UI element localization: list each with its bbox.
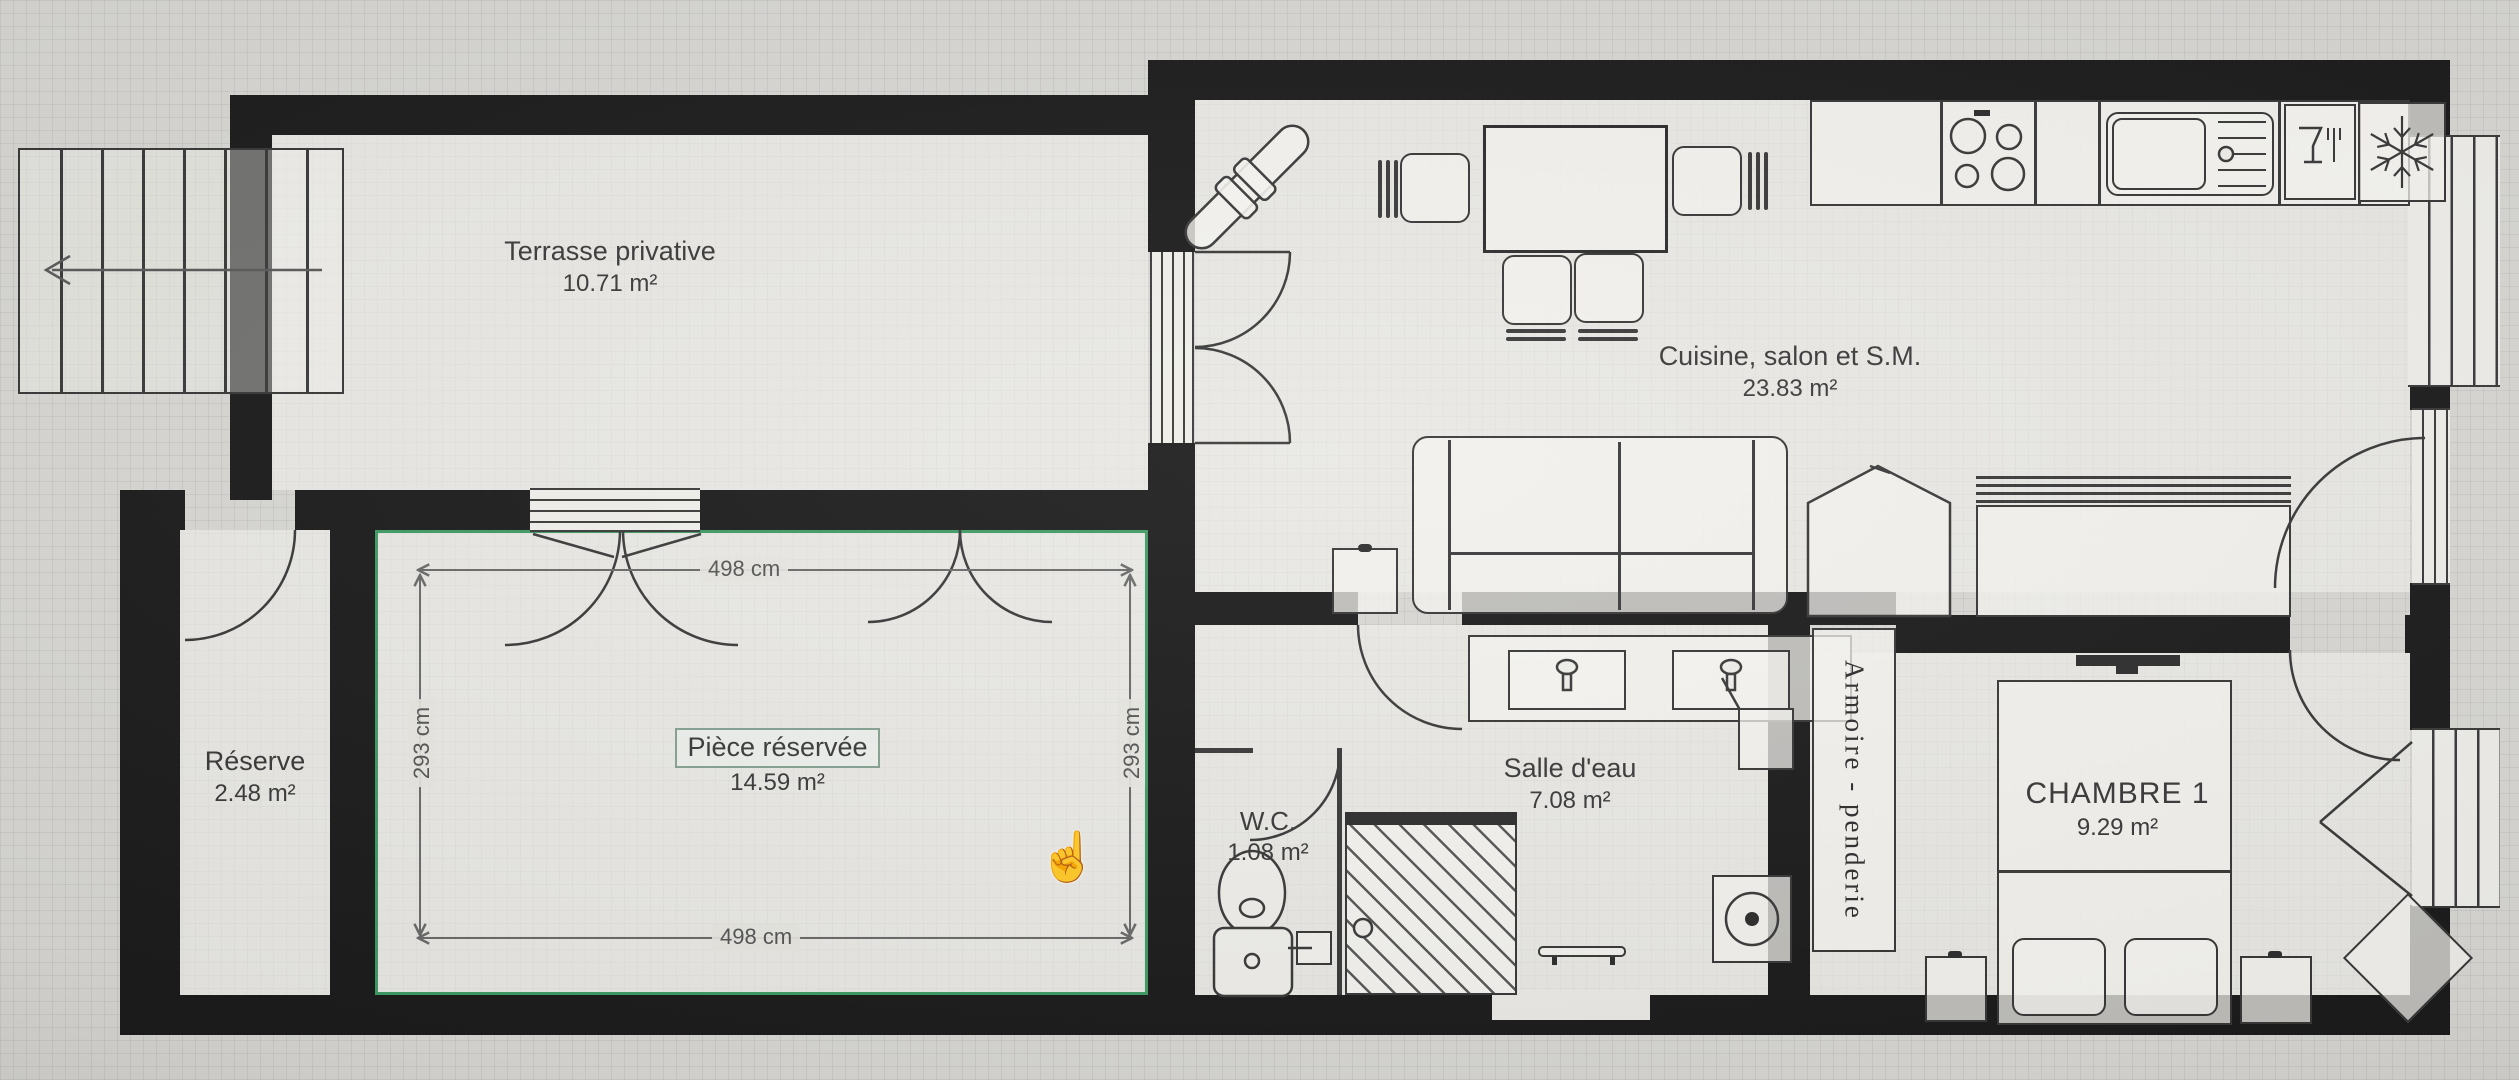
label-wc: W.C. 1.08 m² (1198, 805, 1338, 868)
room-name: Terrasse privative (504, 236, 716, 266)
cooktop-control (1974, 110, 1990, 116)
washer-door-dot (1745, 912, 1759, 926)
floor-plan: Armoire - penderie (0, 0, 2519, 1080)
burner (1956, 165, 1978, 187)
burner (1951, 119, 1985, 153)
dimension-label-bottom: 498 cm (712, 924, 800, 950)
snowflake-icon (2367, 116, 2437, 188)
faucet-icon (1721, 660, 1741, 674)
label-reserve: Réserve 2.48 m² (155, 745, 355, 809)
sink-drain (2219, 147, 2233, 161)
room-area: 23.83 m² (1590, 374, 1990, 404)
room-name: W.C. (1240, 806, 1296, 836)
hand-cursor-icon: ☝ (1038, 828, 1098, 885)
label-terrasse: Terrasse privative 10.71 m² (420, 235, 800, 299)
burner (1992, 158, 2024, 190)
room-name: CHAMBRE 1 (2025, 777, 2209, 810)
label-chambre1: CHAMBRE 1 9.29 m² (1985, 775, 2250, 843)
window-swing-lines (2320, 742, 2412, 896)
label-salle-eau: Salle d'eau 7.08 m² (1430, 752, 1710, 816)
room-name: Réserve (205, 746, 306, 776)
selected-room-name-box[interactable]: Pièce réservée (675, 728, 879, 768)
door-arc-reserve (185, 530, 295, 640)
fork-icon (2328, 128, 2340, 162)
faucet-icon (1563, 674, 1571, 690)
dimension-label-left: 293 cm (409, 699, 435, 787)
door-arc-entry (2275, 438, 2425, 588)
door-arc-terrasse-cuisine-top (1195, 252, 1290, 347)
room-area: 9.29 m² (1985, 813, 2250, 843)
room-area: 7.08 m² (1430, 786, 1710, 816)
shower-drain (1354, 919, 1372, 937)
door-arc-chambre (2290, 650, 2400, 760)
dimension-label-top: 498 cm (700, 556, 788, 582)
label-piece-reservee: Pièce réservée 14.59 m² (555, 728, 1000, 798)
glass-icon (2299, 128, 2322, 162)
room-area: 2.48 m² (155, 779, 355, 809)
dimension-label-right: 293 cm (1119, 699, 1145, 787)
label-cuisine: Cuisine, salon et S.M. 23.83 m² (1590, 340, 1990, 404)
burner (1997, 125, 2021, 149)
plan-overlay (0, 0, 2519, 1080)
door-arc-terrasse-cuisine-bottom (1195, 348, 1290, 443)
room-area: 10.71 m² (420, 269, 800, 299)
door-arc-piece-right (623, 530, 738, 645)
door-arc-piece-left (505, 530, 620, 645)
door-arc-salle-eau (1358, 625, 1462, 729)
door-arc-piece2-right (960, 530, 1052, 622)
room-area: 1.08 m² (1198, 838, 1338, 868)
toilet-cistern (1214, 928, 1292, 996)
room-name: Salle d'eau (1504, 753, 1637, 783)
ironing-board-icon (1174, 114, 1320, 260)
lounge-chair-icon (1808, 466, 1950, 616)
door-arc-piece2-left (868, 530, 960, 622)
room-name: Cuisine, salon et S.M. (1659, 341, 1922, 371)
room-area: 14.59 m² (555, 768, 1000, 798)
faucet-icon (1557, 660, 1577, 674)
